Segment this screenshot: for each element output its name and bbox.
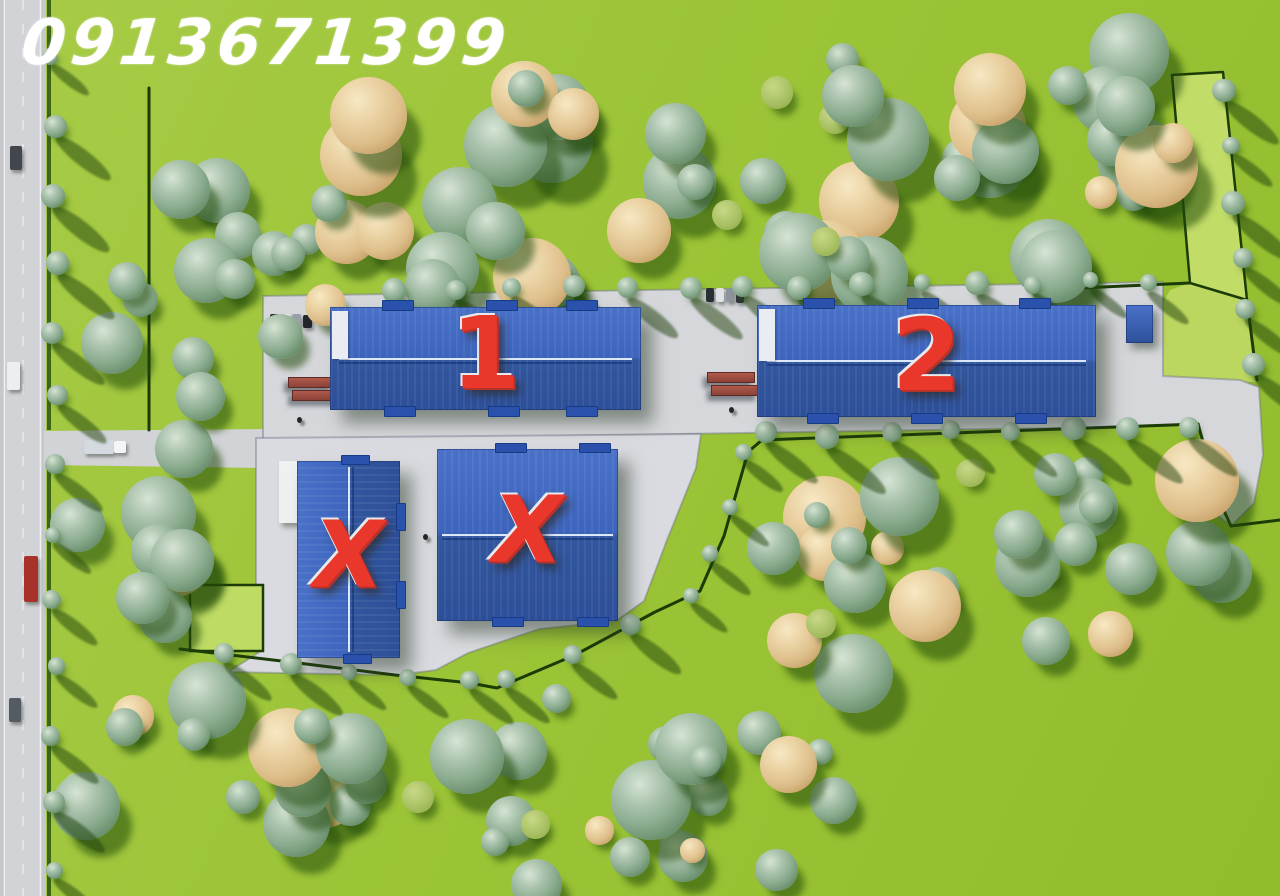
warehouse-2-label: 2 — [892, 306, 962, 406]
bush — [811, 227, 840, 256]
tree — [680, 838, 704, 862]
tree — [1235, 299, 1255, 319]
tree — [1083, 272, 1099, 288]
tree — [511, 859, 562, 896]
tree — [1061, 416, 1085, 440]
roof-vent — [343, 654, 372, 664]
tree — [41, 184, 65, 208]
phone-watermark: 0913671399 — [18, 6, 514, 79]
trees-layer — [0, 0, 1280, 896]
tree — [356, 202, 414, 260]
tree — [1212, 79, 1235, 102]
tree — [1022, 617, 1070, 665]
tree — [46, 862, 63, 879]
tree — [585, 816, 613, 844]
tree — [46, 251, 70, 275]
tree — [1179, 417, 1199, 437]
tree — [972, 117, 1039, 184]
roof-vent — [341, 455, 370, 465]
tree — [620, 614, 641, 635]
tree — [1222, 137, 1239, 154]
tree — [702, 545, 719, 562]
tree — [1166, 520, 1231, 585]
roof-vent — [911, 413, 943, 424]
tree-shadow — [1249, 369, 1280, 424]
tree — [41, 726, 61, 746]
site-plan: 1 2 X X 0913671399 — [0, 0, 1280, 896]
tree — [155, 420, 212, 477]
tree — [645, 103, 706, 164]
tree — [677, 164, 713, 200]
warehouse-2: 2 — [757, 305, 1096, 417]
tree — [44, 115, 67, 138]
tree — [1001, 422, 1020, 441]
tree-shadow — [48, 604, 101, 649]
tree — [965, 271, 990, 296]
tree — [815, 424, 840, 449]
tree-shadow — [53, 400, 110, 449]
tree — [460, 671, 478, 689]
tree — [116, 572, 168, 624]
tree-shadow — [51, 131, 115, 186]
tree-shadow — [568, 659, 621, 705]
roof-vent — [384, 406, 416, 417]
tree-shadow — [686, 293, 747, 345]
tree — [563, 275, 585, 297]
shed — [1126, 305, 1153, 343]
bush — [521, 810, 550, 839]
tree — [1116, 417, 1139, 440]
warehouse-x-left: X — [297, 461, 400, 658]
tree — [45, 454, 65, 474]
tree — [882, 422, 902, 442]
tree — [108, 262, 146, 300]
tree — [732, 276, 753, 297]
tree — [1054, 523, 1097, 566]
tree — [330, 77, 407, 154]
roof-vent — [495, 443, 527, 453]
tree — [1079, 489, 1113, 523]
bush — [806, 609, 835, 638]
tree-shadow — [706, 558, 753, 599]
tree — [755, 421, 777, 443]
warehouse-x-left-label: X — [313, 509, 384, 601]
tree — [542, 684, 571, 713]
roof-vent — [566, 406, 598, 417]
tree — [106, 708, 143, 745]
roof-vent — [382, 300, 414, 311]
tree — [849, 272, 874, 297]
tree — [755, 849, 798, 892]
tree — [1233, 248, 1253, 268]
tree — [43, 791, 64, 812]
tree — [258, 314, 303, 359]
tree — [176, 372, 225, 421]
tree — [1221, 191, 1246, 216]
warehouse-1: 1 — [330, 307, 641, 410]
tree-shadow — [404, 682, 452, 723]
tree — [1088, 611, 1133, 656]
tree — [1242, 353, 1265, 376]
tree — [1140, 274, 1157, 291]
tree — [760, 736, 817, 793]
tree — [680, 277, 702, 299]
tree-shadow — [53, 670, 102, 712]
canopy — [279, 461, 298, 523]
tree — [683, 588, 698, 603]
tree — [607, 198, 671, 262]
warehouse-x-center: X — [437, 449, 618, 621]
tree — [548, 88, 600, 140]
tree — [214, 643, 234, 663]
tree — [399, 669, 416, 686]
tree — [822, 65, 884, 127]
tree — [48, 657, 65, 674]
bush — [761, 76, 793, 108]
tree — [382, 278, 407, 303]
roof-vent — [577, 617, 609, 627]
roof-vent — [566, 300, 598, 311]
tree — [497, 670, 515, 688]
tree — [610, 837, 650, 877]
endwall — [332, 311, 348, 359]
roof-vent — [396, 581, 406, 609]
tree — [151, 160, 210, 219]
tree — [934, 155, 980, 201]
roof-vent — [396, 503, 406, 531]
bush — [402, 781, 434, 813]
roof-vent — [579, 443, 611, 453]
tree — [941, 420, 960, 439]
endwall — [759, 309, 775, 361]
tree — [1105, 543, 1157, 595]
roof-vent — [803, 298, 835, 309]
tree — [271, 237, 305, 271]
tree — [41, 322, 63, 344]
tree — [740, 158, 786, 204]
tree-shadow — [48, 201, 114, 258]
tree — [177, 718, 210, 751]
tree — [831, 527, 868, 564]
tree-shadow — [688, 600, 731, 637]
roof-vent — [807, 413, 839, 424]
tree — [810, 777, 857, 824]
bush — [712, 200, 743, 231]
tree — [1096, 76, 1155, 135]
tree-shadow — [346, 676, 389, 713]
tree — [1048, 66, 1087, 105]
tree — [430, 719, 504, 793]
roof-vent — [1019, 298, 1051, 309]
tree — [889, 570, 962, 643]
roof-vent — [1015, 413, 1047, 424]
tree — [481, 828, 509, 856]
tree — [42, 590, 61, 609]
tree — [466, 202, 524, 260]
tree — [47, 385, 67, 405]
tree — [341, 664, 357, 680]
warehouse-1-label: 1 — [451, 304, 521, 404]
tree — [215, 259, 255, 299]
warehouse-x-center-label: X — [492, 484, 563, 576]
tree — [1085, 176, 1118, 209]
tree — [914, 274, 931, 291]
roof-vent — [492, 617, 524, 627]
tree — [563, 645, 582, 664]
tree — [294, 708, 330, 744]
tree-shadow — [1227, 150, 1276, 192]
tree — [226, 780, 260, 814]
tree — [722, 499, 738, 515]
tree — [814, 634, 894, 714]
tree — [954, 53, 1027, 126]
tree — [1024, 276, 1041, 293]
tree — [735, 444, 751, 460]
tree — [45, 527, 61, 543]
tree — [617, 277, 638, 298]
tree-shadow — [626, 629, 685, 679]
tree — [508, 70, 544, 106]
